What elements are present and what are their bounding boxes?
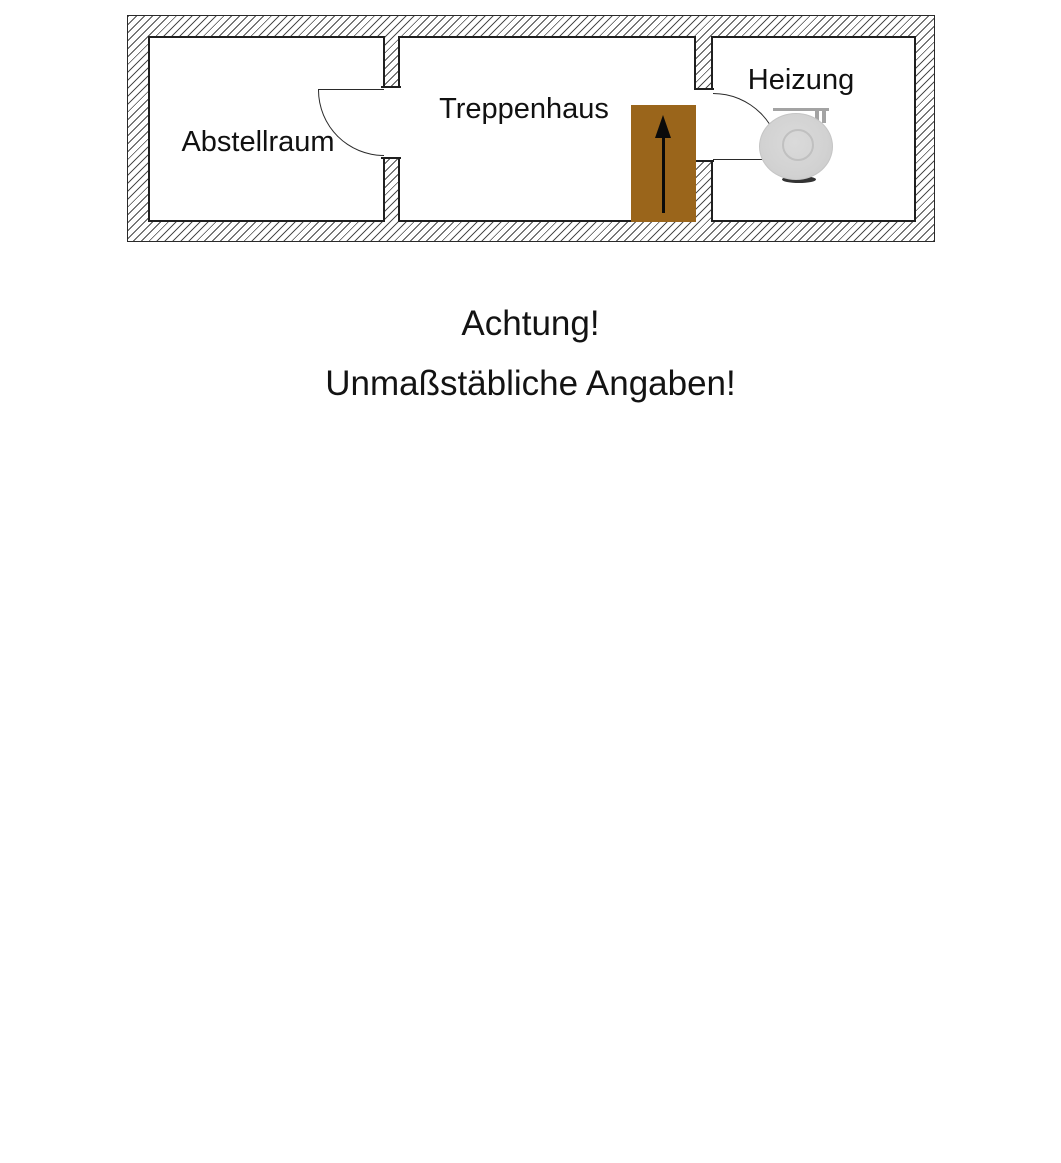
- boiler-pipe-bracket: [773, 108, 829, 111]
- up-arrow-icon: [655, 115, 671, 138]
- boiler-pipe-tab: [822, 110, 826, 123]
- caption-attention: Achtung!: [0, 301, 1061, 347]
- staircase: [631, 105, 696, 222]
- door-opening-heizung: [694, 88, 714, 162]
- floorplan: Abstellraum Treppenhaus Heizung: [127, 15, 935, 242]
- door-opening-abstellraum: [381, 86, 401, 159]
- room-label-treppenhaus: Treppenhaus: [424, 92, 624, 126]
- up-arrow-shaft: [662, 137, 665, 213]
- caption-not-to-scale: Unmaßstäbliche Angaben!: [0, 361, 1061, 407]
- boiler-icon: [759, 113, 833, 180]
- room-label-abstellraum: Abstellraum: [143, 125, 373, 159]
- boiler-lid-ring: [782, 129, 814, 161]
- room-label-heizung: Heizung: [701, 63, 901, 97]
